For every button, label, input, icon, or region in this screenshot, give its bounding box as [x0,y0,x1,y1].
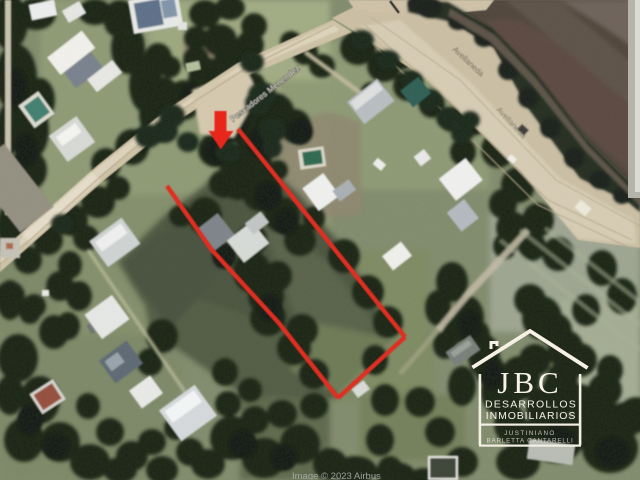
svg-text:DESARROLLOS: DESARROLLOS [485,399,577,411]
svg-text:BARLETTA CANTARELLI: BARLETTA CANTARELLI [486,438,573,445]
svg-text:INMOBILIARIOS: INMOBILIARIOS [486,410,576,422]
svg-text:JBC: JBC [497,365,562,400]
svg-text:JUSTINIANO: JUSTINIANO [504,430,555,437]
svg-text:Image © 2023 Airbus: Image © 2023 Airbus [292,471,381,480]
